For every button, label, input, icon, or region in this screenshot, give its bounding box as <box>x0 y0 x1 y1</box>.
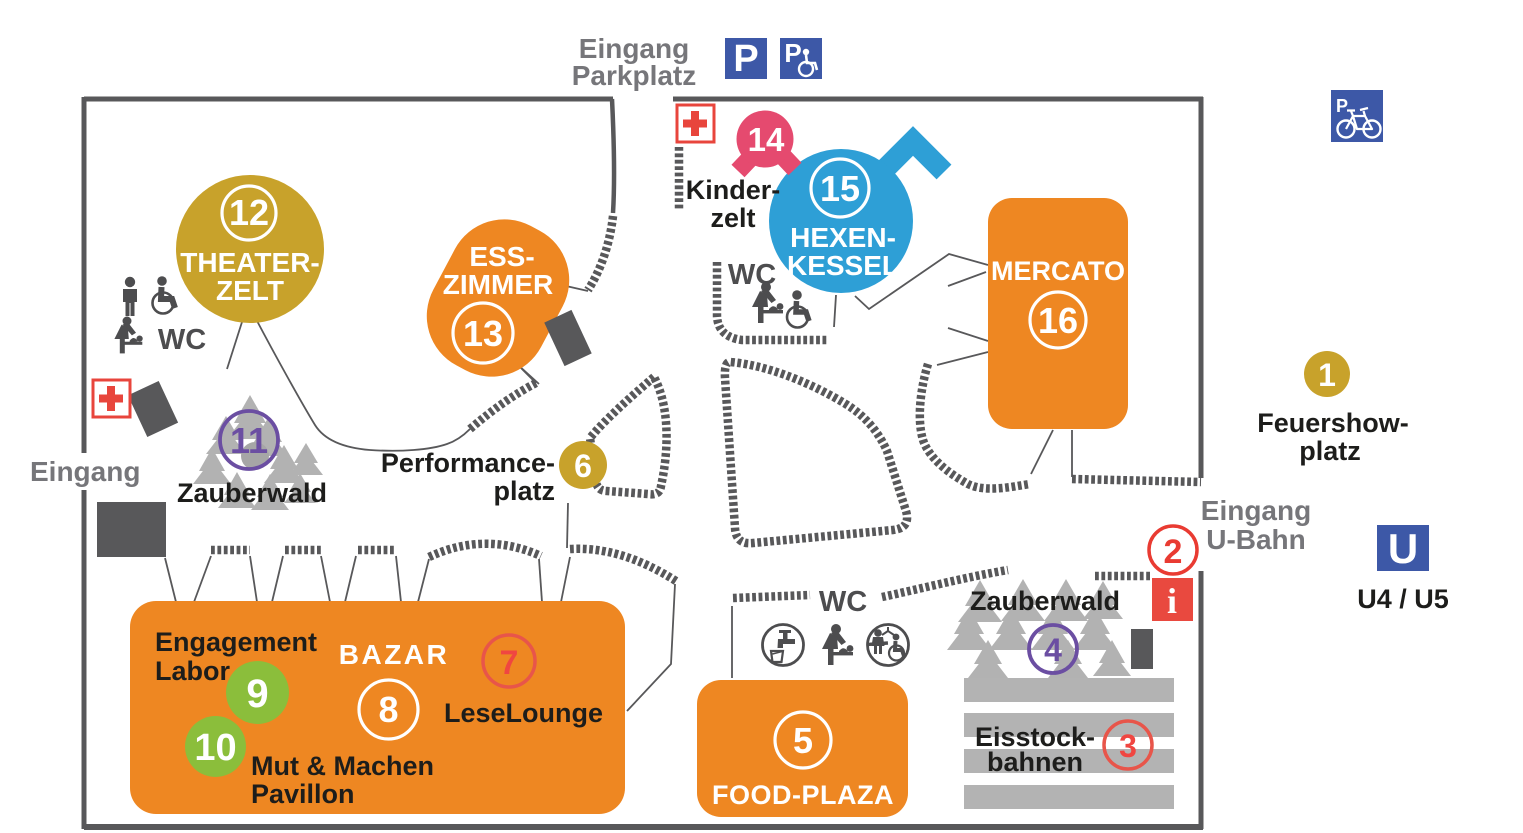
svg-text:zelt: zelt <box>710 203 755 233</box>
svg-text:U-Bahn: U-Bahn <box>1206 524 1306 555</box>
svg-text:11: 11 <box>230 420 268 461</box>
svg-text:1: 1 <box>1318 357 1336 393</box>
svg-text:THEATER-: THEATER- <box>180 247 319 278</box>
svg-text:i: i <box>1167 581 1177 621</box>
svg-text:Kinder-: Kinder- <box>686 175 781 205</box>
svg-text:P: P <box>1336 96 1348 116</box>
svg-text:5: 5 <box>793 720 813 761</box>
svg-text:2: 2 <box>1164 533 1183 571</box>
svg-text:Mut & Machen: Mut & Machen <box>251 751 434 781</box>
svg-text:13: 13 <box>463 313 503 354</box>
svg-text:bahnen: bahnen <box>987 747 1083 777</box>
svg-text:10: 10 <box>194 727 236 769</box>
svg-text:ESS-: ESS- <box>469 241 534 272</box>
svg-text:14: 14 <box>748 121 785 158</box>
svg-text:HEXEN-: HEXEN- <box>790 222 896 253</box>
svg-text:15: 15 <box>820 168 860 209</box>
svg-text:4: 4 <box>1044 632 1062 668</box>
svg-text:U: U <box>1388 525 1418 572</box>
svg-text:Performance-: Performance- <box>381 448 555 478</box>
svg-text:FOOD-PLAZA: FOOD-PLAZA <box>712 780 894 810</box>
svg-text:Pavillon: Pavillon <box>251 779 355 809</box>
svg-text:Feuershow-: Feuershow- <box>1257 408 1409 438</box>
svg-text:KESSEL: KESSEL <box>787 250 899 281</box>
svg-text:WC: WC <box>819 586 867 618</box>
svg-text:platz: platz <box>1299 436 1361 466</box>
svg-text:LeseLounge: LeseLounge <box>444 698 603 728</box>
svg-text:P: P <box>733 38 758 80</box>
svg-text:8: 8 <box>378 689 398 730</box>
svg-text:BAZAR: BAZAR <box>339 639 450 670</box>
svg-text:Zauberwald: Zauberwald <box>177 478 327 508</box>
svg-text:U4 / U5: U4 / U5 <box>1357 584 1449 614</box>
svg-text:ZELT: ZELT <box>216 275 284 306</box>
svg-text:16: 16 <box>1038 300 1078 341</box>
svg-text:Zauberwald: Zauberwald <box>970 586 1120 616</box>
svg-text:Parkplatz: Parkplatz <box>572 60 697 91</box>
svg-text:Engagement: Engagement <box>155 627 317 657</box>
svg-text:3: 3 <box>1119 728 1137 764</box>
svg-text:MERCATO: MERCATO <box>991 256 1125 286</box>
svg-text:platz: platz <box>493 476 555 506</box>
svg-text:WC: WC <box>158 324 206 356</box>
svg-text:12: 12 <box>229 192 269 233</box>
svg-text:ZIMMER: ZIMMER <box>443 269 553 300</box>
svg-text:P: P <box>784 38 801 68</box>
svg-text:7: 7 <box>500 644 519 682</box>
svg-text:Eingang: Eingang <box>1201 495 1311 526</box>
svg-text:Eingang: Eingang <box>30 456 140 487</box>
svg-text:Labor: Labor <box>155 656 230 686</box>
svg-text:9: 9 <box>246 672 268 716</box>
svg-text:6: 6 <box>574 448 592 484</box>
